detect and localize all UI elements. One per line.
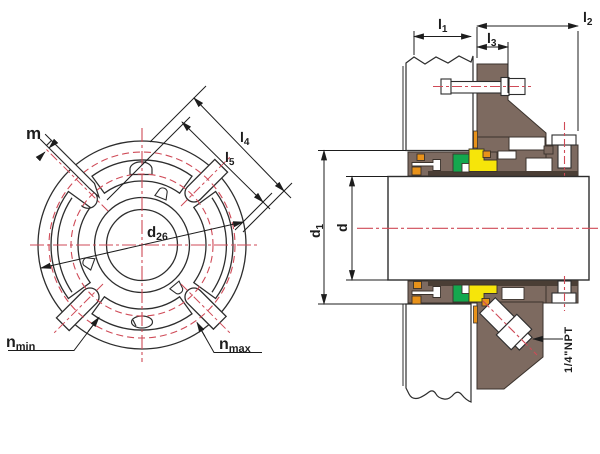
svg-text:d: d: [334, 223, 350, 232]
svg-text:1/4"NPT: 1/4"NPT: [563, 326, 575, 373]
svg-text:m: m: [26, 124, 41, 143]
